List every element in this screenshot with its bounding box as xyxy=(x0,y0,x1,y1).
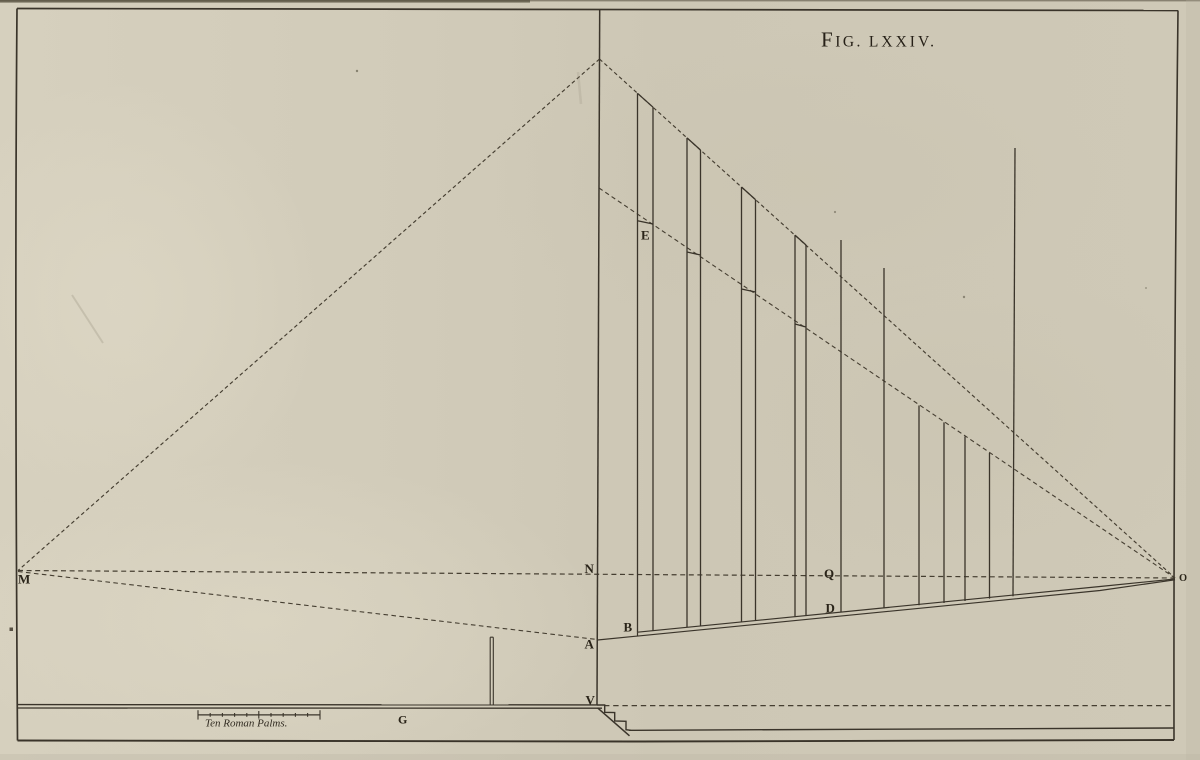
svg-text:E: E xyxy=(641,228,650,243)
svg-text:O: O xyxy=(1179,573,1187,584)
svg-text:D: D xyxy=(826,601,835,616)
svg-text:Ten Roman Palms.: Ten Roman Palms. xyxy=(205,717,287,729)
svg-text:G: G xyxy=(398,713,407,727)
svg-text:A: A xyxy=(585,637,595,652)
svg-text:Q: Q xyxy=(824,566,834,581)
svg-text:M: M xyxy=(18,572,30,587)
svg-text:V: V xyxy=(586,693,596,708)
svg-text:N: N xyxy=(585,561,595,576)
svg-text:B: B xyxy=(624,620,633,635)
